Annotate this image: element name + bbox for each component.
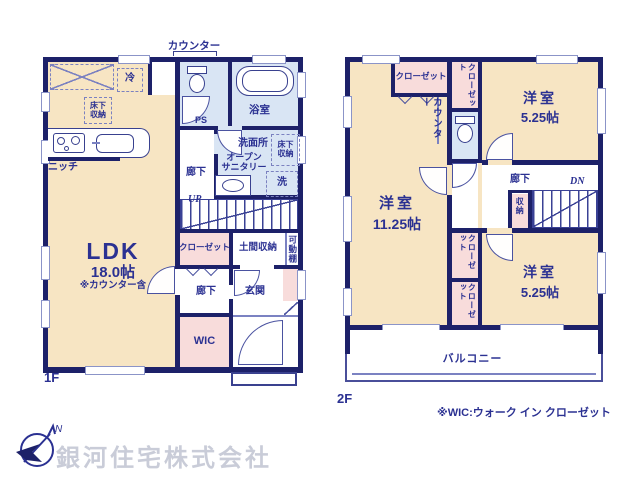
window-marker <box>536 55 578 64</box>
shelf-label: 可動棚 <box>287 235 297 265</box>
wall-segment <box>528 190 532 228</box>
wall-segment <box>175 295 180 368</box>
window-marker <box>41 300 50 328</box>
washbasin-bowl <box>222 179 244 192</box>
window-marker <box>343 96 352 128</box>
window-marker <box>597 88 606 134</box>
toilet-tank-icon <box>187 66 207 74</box>
balcony-wall-stub <box>345 330 350 354</box>
wic-note: ※WIC:ウォーク イン クローゼット <box>437 407 611 420</box>
wall-segment <box>148 62 152 95</box>
window-marker <box>41 246 50 280</box>
ps-label: PS <box>195 115 207 125</box>
washroom-label: 洗面所 <box>238 138 268 150</box>
room-se-size-label: 5.25帖 <box>505 286 575 301</box>
closet-1f-label: クローゼット <box>179 243 230 253</box>
niche-wall <box>48 157 120 161</box>
wall-segment <box>175 313 233 317</box>
bath-label: 浴室 <box>249 104 270 116</box>
room-w-size-label: 11.25帖 <box>355 216 439 232</box>
window-marker <box>297 72 306 98</box>
floor2-label: 2F <box>337 392 352 407</box>
kitchen-sink-icon <box>96 134 134 153</box>
bathtub-inner <box>242 70 288 92</box>
floor-plan-canvas: 冷 床下 収納 洗 床下 収納 カウンター 浴室 PS 洗面所 オープン サニタ… <box>0 0 640 480</box>
window-marker <box>252 55 286 64</box>
compass-north-label: N <box>55 424 63 435</box>
wall-segment <box>512 228 603 233</box>
hall-upper-label: 廊下 <box>186 167 206 179</box>
storage-label: 収納 <box>515 197 524 227</box>
ldk-size-label: 18.0帖 <box>78 264 148 281</box>
wall-segment <box>175 126 218 130</box>
closet-col-mid-label: クローゼット <box>458 234 476 278</box>
hall-lower-label: 廊下 <box>196 286 216 298</box>
wall-segment <box>228 62 232 126</box>
closet-nw-label: クローゼット <box>394 72 448 82</box>
stove-burner <box>64 146 69 151</box>
stove-burner <box>71 136 80 145</box>
open-sanitary-label: オープン サニタリー <box>220 152 268 173</box>
window-marker <box>297 270 306 300</box>
entrance-step-line <box>233 315 298 317</box>
wall-segment <box>229 269 233 285</box>
window-marker <box>597 252 606 294</box>
wall-segment <box>447 278 482 282</box>
wall-segment <box>298 57 303 373</box>
wall-segment <box>482 160 488 165</box>
faucet-icon <box>92 142 100 144</box>
hall-2f-label: 廊下 <box>510 174 530 186</box>
entrance-slope-hatch <box>284 302 298 315</box>
eaves-hatch-box <box>50 64 114 90</box>
ldk-note-label: ※カウンター含 <box>66 281 160 292</box>
company-name: 銀河住宅株式会社 <box>56 438 272 473</box>
porch <box>231 372 297 386</box>
counter-2f-label: カウンター <box>419 97 441 145</box>
wall-segment <box>175 62 180 267</box>
wall-segment <box>175 229 303 233</box>
doma-label: 土間収納 <box>233 243 283 254</box>
window-marker <box>343 196 352 242</box>
counter-nook <box>152 62 175 95</box>
floor1-label: 1F <box>44 371 59 386</box>
ldk-label: LDK <box>78 238 148 264</box>
underfloor-storage-label: 床下 収納 <box>84 101 112 119</box>
stairs-2f <box>532 190 598 228</box>
room-w-label: 洋室 <box>362 195 432 212</box>
dn-label: DN <box>570 176 584 188</box>
balcony-rail-line <box>352 373 596 375</box>
window-marker <box>118 55 150 64</box>
wall-segment <box>508 190 512 228</box>
toilet-bowl-icon <box>189 74 205 93</box>
wall-segment <box>512 160 603 165</box>
counter-bracket <box>173 51 217 56</box>
room-ne-size-label: 5.25帖 <box>505 111 575 126</box>
wic-label: WIC <box>180 335 229 348</box>
wall-segment <box>274 265 303 269</box>
wall-segment <box>242 126 303 130</box>
toilet-tank-icon-2f <box>455 116 475 124</box>
entrance-label: 玄関 <box>245 286 265 298</box>
fridge-label: 冷 <box>117 73 143 85</box>
washer-label: 洗 <box>266 177 298 189</box>
window-marker <box>85 366 145 375</box>
window-marker <box>362 55 400 64</box>
toilet-bowl-icon-2f <box>457 124 473 143</box>
room-ne-label: 洋室 <box>505 90 575 106</box>
stove-burner <box>57 137 65 145</box>
room-ldk <box>48 62 183 368</box>
wall-segment <box>447 195 452 325</box>
closet-col-bottom-label: クローゼット <box>458 283 476 325</box>
room-se-label: 洋室 <box>505 264 575 280</box>
window-marker <box>343 288 352 316</box>
wall-segment <box>447 228 487 233</box>
balcony-wall-stub <box>598 330 603 354</box>
niche-label: ニッチ <box>48 162 78 174</box>
window-marker <box>41 92 50 112</box>
wall-segment <box>447 108 482 112</box>
balcony-label: バルコニー <box>420 353 525 366</box>
up-label: UP <box>188 194 201 206</box>
shoe-cabinet <box>283 267 298 301</box>
underfloor-storage-wash-label: 床下 収納 <box>271 140 300 158</box>
wall-segment <box>229 317 233 368</box>
closet-col-top-label: クローゼット <box>458 63 476 108</box>
